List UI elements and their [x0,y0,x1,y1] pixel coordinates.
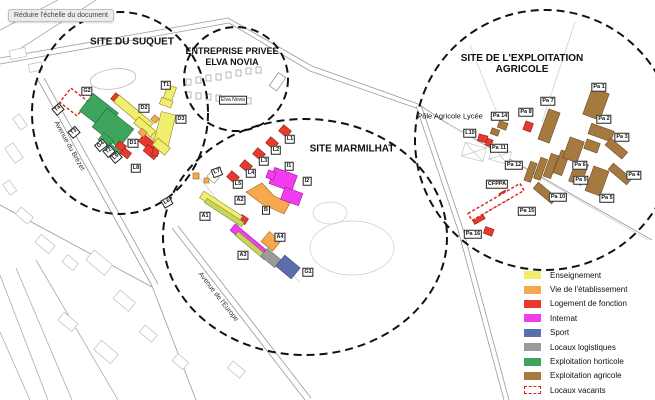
legend-item-internat: Internat [524,311,627,325]
map-shape [269,73,286,91]
building-label-l2: L2 [271,146,281,155]
map-shape [497,121,508,131]
building-label-t1: T1 [161,81,171,90]
legend: EnseignementVie de l'établissementLogeme… [524,268,627,398]
building-label-a3: A3 [237,251,248,260]
building-label-pa-1: Pa 1 [591,83,606,92]
legend-label: Exploitation horticole [550,357,624,366]
map-shape [193,173,199,179]
boundary-marmilhat [163,119,447,355]
map-shape [196,77,201,83]
building-label-l1: L1 [285,135,295,144]
site-title-marmilhat: SITE MARMILHAT [310,144,395,155]
viewer-tooltip: Réduire l'échelle du document [8,9,114,22]
building-label-pa-9: Pa 9 [573,176,588,185]
building-label-cfppa: CFPPA [486,180,508,189]
map-shape [186,79,191,85]
legend-item-locaux-logistiques: Locaux logistiques [524,340,627,354]
building-label-pa-16: Pa 16 [464,230,482,239]
legend-label: Enseignement [550,271,601,280]
building-label-l3: L3 [259,157,269,166]
map-shape [605,138,628,159]
map-shape [523,121,534,132]
map-shape [563,137,585,163]
legend-swatch [524,271,541,279]
map-shape [94,340,119,363]
map-shape [483,227,494,237]
map-shape [62,255,79,271]
map-shape [16,268,72,400]
legend-label: Locaux logistiques [550,343,616,352]
building-label-l10: L10 [463,129,476,138]
site-title-elva-novia: ENTREPRISE PRIVEEELVA NOVIA [185,46,278,68]
legend-swatch [524,300,541,308]
agri-blocks [490,88,632,204]
legend-item-enseignement: Enseignement [524,268,627,282]
building-label-i1: I1 [285,162,294,171]
suquet-buildings [60,85,177,160]
building-label-pa-8: Pa 8 [518,108,533,117]
map-shape [204,178,209,183]
building-label-l4: L4 [246,169,256,178]
legend-label: Logement de fonction [550,299,627,308]
building-label-a4: A4 [274,233,285,242]
building-label-d3: D3 [175,115,186,124]
map-shape [538,109,560,143]
map-shape [490,128,500,136]
building-label-d1: D1 [127,139,138,148]
building-label-pa-5: Pa 5 [599,194,614,203]
vacant-building-cfppa [468,184,524,221]
building-label-b: B [262,206,270,215]
agricole-buildings [468,88,632,236]
map-shape [139,325,157,342]
building-label-l8: L8 [131,164,141,173]
map-shape [313,202,347,224]
site-title-agricole: SITE DE L'EXPLOITATIONAGRICOLE [461,53,584,75]
map-shape [18,0,96,50]
site-map: SITE DU SUQUET ENTREPRISE PRIVEEELVA NOV… [0,0,655,400]
legend-label: Internat [550,314,577,323]
map-shape [58,312,78,331]
map-shape [310,221,394,275]
legend-item-exploitation-agricole: Exploitation agricole [524,369,627,383]
map-shape [0,275,48,400]
building-label-a1: A1 [199,212,210,221]
map-shape [35,234,55,253]
building-label-l5: L5 [233,180,243,189]
building-label-pa-15: Pa 15 [518,207,536,216]
map-shape [89,66,137,92]
map-shape [206,75,211,81]
legend-item-locaux-vacants: Locaux vacants [524,383,627,397]
map-shape [462,142,487,161]
legend-swatch [524,386,541,394]
building-label-d2: D2 [138,104,149,113]
legend-label: Sport [550,328,569,337]
legend-item-vie-de-l-tablissement: Vie de l'établissement [524,282,627,296]
roads-secondary [0,0,118,400]
building-label-pa-7: Pa 7 [540,97,555,106]
legend-swatch [524,329,541,337]
building-label-pa-12: Pa 12 [505,161,523,170]
map-shape [227,361,245,378]
map-shape [524,161,537,182]
map-shape [13,114,28,130]
map-shape [36,260,118,400]
building-label-pa-4: Pa 4 [626,171,641,180]
legend-label: Exploitation agricole [550,371,622,380]
building-label-pa-14: Pa 14 [491,112,509,121]
building-label-a2: A2 [234,196,245,205]
map-shape [5,143,24,163]
legend-swatch [524,343,541,351]
legend-item-logement-de-fonction: Logement de fonction [524,297,627,311]
map-shape [3,180,17,195]
legend-swatch [524,358,541,366]
building-label-g1: G1 [302,268,313,277]
legend-swatch [524,286,541,294]
map-shape [216,74,221,80]
map-shape [226,72,231,78]
map-shape [172,354,189,370]
map-shape [236,70,241,76]
map-shape [584,139,601,153]
building-label-pa-10: Pa 10 [549,193,567,202]
building-label-pa-3: Pa 3 [614,133,629,142]
map-shape [152,286,196,400]
map-shape [113,290,135,311]
map-shape [9,47,27,59]
building-label-i2: I2 [303,177,312,186]
poi-pole-agricole-lycee: Pôle Agricole Lycée [417,112,483,121]
building-label-elva-novia: Elva Novia [219,96,247,105]
building-label-pa-11: Pa 11 [490,144,508,153]
legend-item-exploitation-horticole: Exploitation horticole [524,354,627,368]
legend-swatch [524,314,541,322]
building-label-pa-6: Pa 6 [572,161,587,170]
building-label-pa-2: Pa 2 [596,115,611,124]
legend-swatch [524,372,541,380]
site-title-suquet: SITE DU SUQUET [90,37,174,48]
legend-label: Vie de l'établissement [550,285,627,294]
legend-label: Locaux vacants [550,386,606,395]
map-shape [246,68,251,74]
building-label-g2: G2 [81,87,92,96]
map-shape [151,115,159,123]
map-shape [196,93,201,99]
legend-item-sport: Sport [524,326,627,340]
